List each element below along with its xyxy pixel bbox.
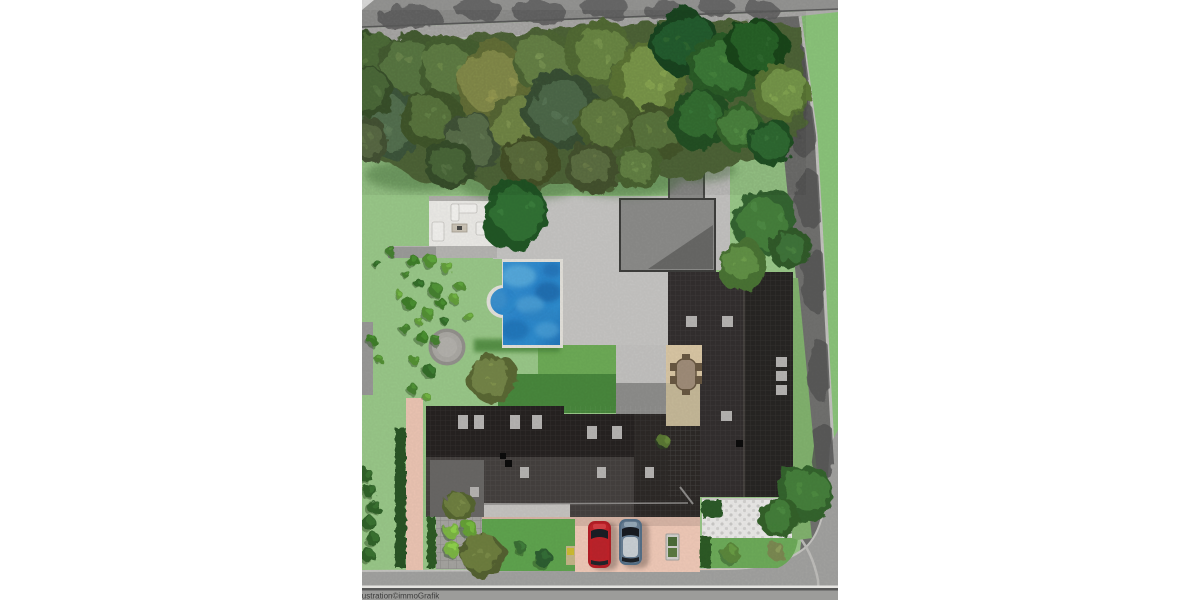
svg-text:lustration©immoGrafik: lustration©immoGrafik <box>360 592 440 600</box>
